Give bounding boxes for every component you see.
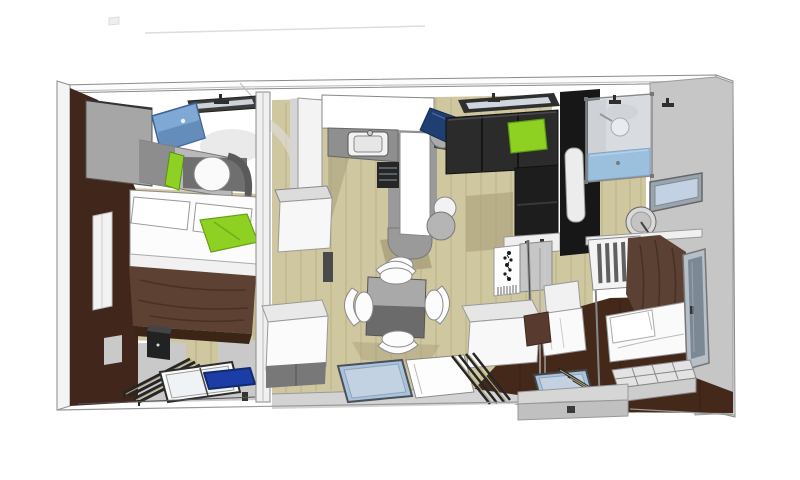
divider-gray-panel [520,241,552,292]
brown-duvet [129,266,256,334]
window-frame-leg [242,392,248,401]
kitchen-counter-top [322,95,434,132]
floorplan-canvas [0,0,800,480]
chair-seat [355,292,373,322]
floorplan-render [0,0,800,480]
top-wall [63,75,721,93]
cabinet-dark-slot [323,252,333,282]
tv-camera-dot [181,119,185,123]
kitchen-counter-arm [400,132,430,236]
oven [377,162,399,188]
room-divider-wall [256,92,333,402]
brown-cushion [524,312,551,346]
living-floor-window-glass [344,364,406,398]
wall-cabinet-front [278,198,332,252]
step-support [567,406,575,413]
tall-cabinet-side [290,98,298,201]
chair-seat [382,331,414,347]
left-wall [57,81,70,410]
counter-armchair [427,212,455,240]
chair-seat [380,268,412,284]
roll-pillow [194,157,230,191]
wall-mirror [565,148,586,223]
shower-glass [586,94,652,182]
chair-seat [425,290,443,320]
sink-tap [368,131,373,136]
green-cushion [508,119,547,153]
sink-basin [354,136,382,152]
cabinet-knob [157,344,160,347]
storage-cube-front [266,316,328,370]
roof-edge-line [145,26,425,33]
roof-vent [109,17,119,25]
wall-panel-small [104,335,122,365]
